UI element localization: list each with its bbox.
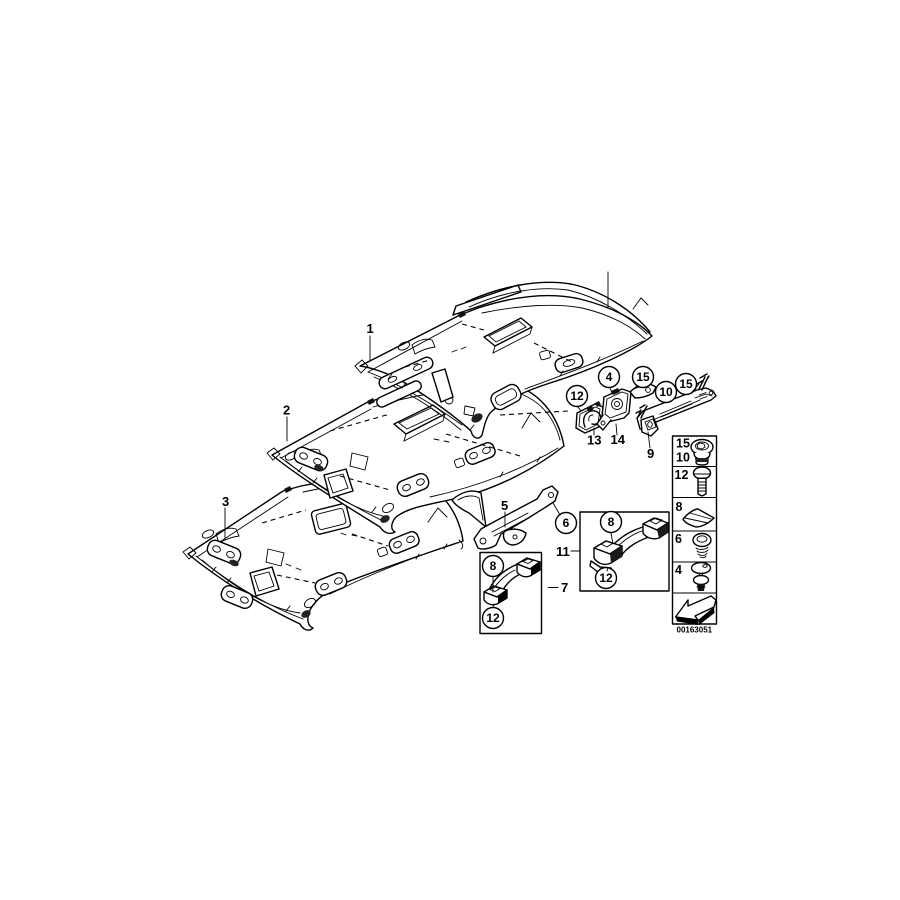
- svg-text:6: 6: [563, 516, 570, 530]
- svg-text:12: 12: [570, 389, 584, 403]
- svg-text:4: 4: [675, 563, 682, 577]
- svg-text:2: 2: [283, 403, 290, 418]
- svg-text:8: 8: [490, 559, 497, 573]
- svg-text:12: 12: [599, 571, 613, 585]
- svg-text:11: 11: [556, 544, 570, 559]
- svg-text:15: 15: [679, 377, 693, 391]
- svg-text:3: 3: [222, 494, 229, 509]
- svg-text:6: 6: [675, 532, 682, 546]
- svg-text:10: 10: [676, 451, 690, 465]
- svg-text:12: 12: [486, 611, 500, 625]
- svg-text:00163051: 00163051: [677, 626, 713, 635]
- svg-text:12: 12: [675, 468, 689, 482]
- svg-text:10: 10: [659, 385, 673, 399]
- svg-text:14: 14: [611, 432, 626, 447]
- svg-text:8: 8: [608, 515, 615, 529]
- svg-text:8: 8: [676, 500, 683, 514]
- svg-text:7: 7: [561, 580, 568, 595]
- svg-text:15: 15: [676, 437, 690, 451]
- svg-text:9: 9: [647, 446, 654, 461]
- svg-text:5: 5: [501, 498, 508, 513]
- svg-text:15: 15: [636, 370, 650, 384]
- svg-text:4: 4: [606, 370, 613, 384]
- svg-text:1: 1: [367, 321, 374, 336]
